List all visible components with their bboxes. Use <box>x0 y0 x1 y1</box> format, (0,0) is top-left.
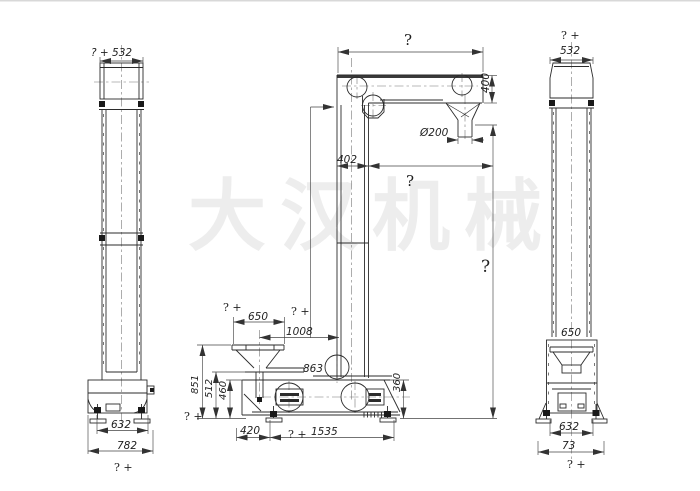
watermark-text: 大汉机械 <box>188 172 556 262</box>
elevator-technical-drawing: 大汉机械 <box>0 0 700 491</box>
front-dim-tail-height: 360 <box>392 373 403 392</box>
front-dim-inlet-note: ? + <box>291 305 310 318</box>
right-dim-hopper-width: 650 <box>561 327 581 339</box>
right-dim-boot-width: 632 <box>559 421 579 433</box>
front-dim-foot-offset: 420 <box>240 425 260 437</box>
left-dim-base-note: ? + <box>114 461 133 474</box>
front-dim-head-width: ? <box>404 31 412 49</box>
right-dim-base-note: ? + <box>567 458 586 471</box>
left-dim-base-width: 782 <box>117 440 137 452</box>
front-dim-head-overhang: ? <box>406 172 414 190</box>
front-dim-discharge-height: ? <box>481 257 490 277</box>
front-dim-base-note: ? + <box>288 428 307 441</box>
front-dim-boot-height: 460 <box>218 381 229 400</box>
front-dim-hopper-width: 650 <box>248 311 268 323</box>
drawing-svg: 大汉机械 <box>0 0 700 491</box>
left-side-view-outline <box>88 63 154 423</box>
front-dim-outlet-diameter: Ø200 <box>419 127 449 139</box>
page-top-rule <box>0 0 700 2</box>
front-dim-hopper-note: ? + <box>223 301 242 314</box>
front-dim-plate-height: 512 <box>204 379 215 398</box>
left-dim-top-width: ? + 532 <box>91 47 132 59</box>
front-dim-chute-height: 863 <box>303 363 323 375</box>
front-dim-hopper-height: 851 <box>190 375 201 394</box>
front-dim-head-height: 400 <box>480 73 492 93</box>
front-dim-base-span: 1535 <box>311 426 338 438</box>
right-dim-top-width: 532 <box>560 45 580 57</box>
left-dim-boot-width: 632 <box>111 419 131 431</box>
right-dim-top-note: ? + <box>561 29 580 42</box>
front-dim-casing-width: 402 <box>337 154 357 166</box>
front-dim-hopper-height-note: ? + <box>184 410 203 423</box>
front-dim-inlet-span: 1008 <box>286 326 313 338</box>
right-dim-base-width: 73 <box>562 440 575 452</box>
